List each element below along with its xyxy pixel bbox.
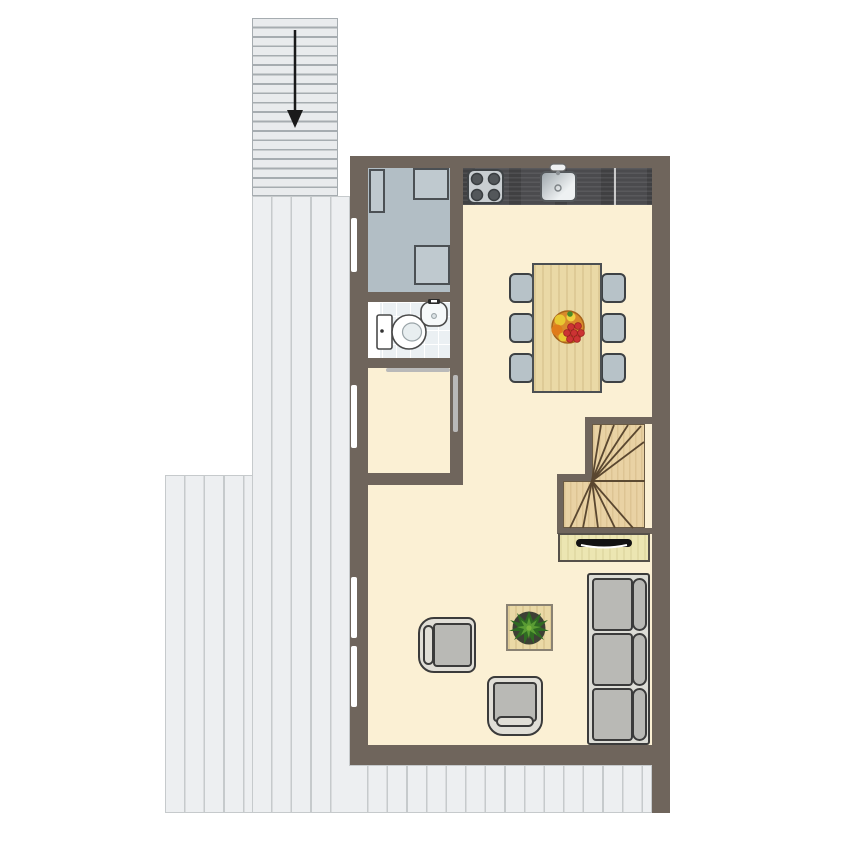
sliding-door-bathroom xyxy=(386,368,450,372)
terrace-door-upper xyxy=(351,577,357,638)
wall-bathroom-top xyxy=(368,292,450,302)
bathroom-floor-tiles xyxy=(368,302,450,358)
sofa-back-cushion xyxy=(632,578,647,631)
appliance-unit-bottom xyxy=(414,245,450,285)
sofa-back-cushion xyxy=(632,688,647,741)
sofa-seat-cushion xyxy=(592,633,633,686)
wall-bathroom-bottom xyxy=(368,358,450,368)
appliance-unit-top xyxy=(413,168,449,200)
wall-stair-upper-left xyxy=(585,417,592,481)
terrace-deck-bottom xyxy=(349,765,652,813)
cooktop xyxy=(467,169,504,204)
sofa-back-cushion xyxy=(632,633,647,686)
wall-right xyxy=(652,156,670,813)
sofa-seat-cushion xyxy=(592,578,633,631)
terrace-deck-left-wide xyxy=(165,475,253,813)
wall-bottom xyxy=(350,745,670,765)
bathroom-door xyxy=(368,302,380,358)
floor-plan-canvas xyxy=(0,0,844,844)
coffee-table xyxy=(506,604,553,651)
armchair-left-cushion xyxy=(433,623,472,667)
dining-chair xyxy=(601,353,626,383)
sofa-seat-cushion xyxy=(592,688,633,741)
terrace-door-lower xyxy=(351,646,357,707)
dining-chair xyxy=(509,273,534,303)
dining-chair xyxy=(601,273,626,303)
window-hallway xyxy=(351,385,357,448)
dining-chair xyxy=(509,353,534,383)
sideboard xyxy=(558,533,650,562)
wall-stair-top xyxy=(585,417,652,424)
armchair-left-back xyxy=(423,625,434,665)
appliance-cabinet-tall xyxy=(369,169,385,213)
window-storage-room xyxy=(351,218,357,272)
kitchen-sink xyxy=(540,171,577,202)
armchair-bottom-back xyxy=(496,716,534,727)
kitchen-counter-divider xyxy=(614,168,616,205)
wall-interior-divider xyxy=(450,156,463,485)
interior-staircase-lower xyxy=(563,481,645,528)
interior-staircase-upper xyxy=(592,424,645,481)
exterior-staircase xyxy=(252,18,338,196)
terrace-deck-left-column xyxy=(252,196,350,813)
wall-top xyxy=(350,156,670,168)
wall-hallway-bottom xyxy=(368,473,463,485)
dining-table xyxy=(532,263,602,393)
dining-chair xyxy=(509,313,534,343)
sliding-door-hallway xyxy=(453,375,458,432)
dining-chair xyxy=(601,313,626,343)
